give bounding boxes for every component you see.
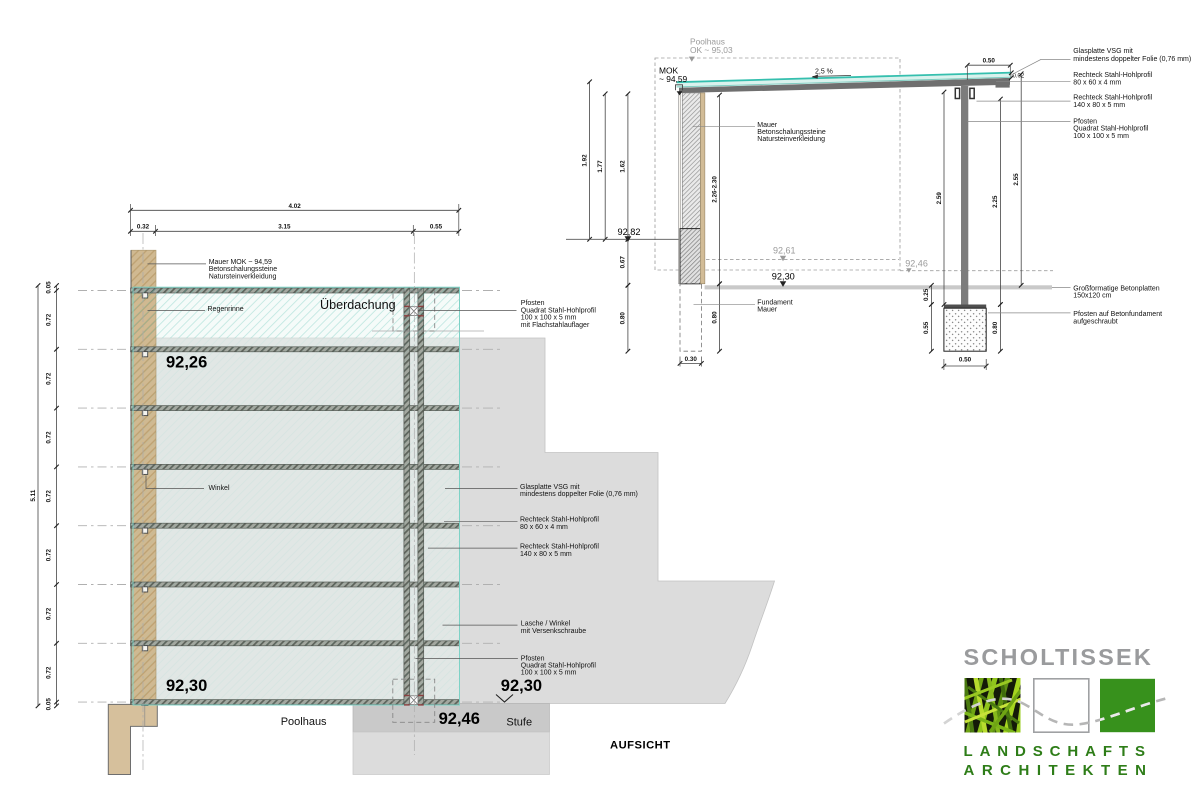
- svg-text:0.32: 0.32: [137, 224, 150, 231]
- svg-text:0.30: 0.30: [685, 356, 698, 363]
- svg-text:Mauer MOK ~ 94,59: Mauer MOK ~ 94,59: [209, 259, 272, 266]
- svg-text:80 x 60 x 4 mm: 80 x 60 x 4 mm: [1073, 79, 1121, 86]
- svg-text:0.72: 0.72: [46, 372, 53, 385]
- svg-text:AUFSICHT: AUFSICHT: [610, 740, 671, 752]
- svg-text:92,46: 92,46: [905, 259, 928, 269]
- svg-text:LANDSCHAFTS: LANDSCHAFTS: [964, 743, 1152, 760]
- svg-text:Überdachung: Überdachung: [320, 298, 396, 312]
- svg-text:2.55: 2.55: [1013, 173, 1020, 186]
- svg-text:2.25: 2.25: [992, 195, 999, 208]
- svg-text:0.55: 0.55: [923, 321, 930, 334]
- svg-text:92,30: 92,30: [501, 677, 542, 695]
- svg-text:OK ~ 95,03: OK ~ 95,03: [690, 45, 733, 55]
- svg-text:100 x 100 x 5 mm: 100 x 100 x 5 mm: [1073, 133, 1129, 140]
- svg-text:1.62: 1.62: [620, 160, 627, 173]
- svg-text:0.72: 0.72: [46, 431, 53, 444]
- svg-text:Betonschalungssteine: Betonschalungssteine: [757, 129, 826, 136]
- svg-text:Mauer: Mauer: [757, 122, 778, 129]
- svg-text:0.80: 0.80: [992, 321, 999, 334]
- svg-text:92,82: 92,82: [618, 227, 641, 237]
- svg-text:0.72: 0.72: [46, 607, 53, 620]
- svg-text:0.72: 0.72: [46, 666, 53, 679]
- svg-text:0.50: 0.50: [959, 357, 972, 364]
- svg-text:Rechteck Stahl-Hohlprofil: Rechteck Stahl-Hohlprofil: [1073, 95, 1152, 102]
- svg-text:SCHOLTISSEK: SCHOLTISSEK: [964, 644, 1154, 670]
- svg-text:2.59: 2.59: [936, 192, 943, 205]
- svg-text:Quadrat Stahl-Hohlprofil: Quadrat Stahl-Hohlprofil: [1073, 126, 1149, 133]
- svg-text:Quadrat Stahl-Hohlprofil: Quadrat Stahl-Hohlprofil: [521, 307, 597, 314]
- svg-text:0.55: 0.55: [430, 224, 443, 231]
- svg-text:0.25: 0.25: [923, 288, 930, 301]
- svg-text:Natursteinverkleidung: Natursteinverkleidung: [757, 136, 825, 143]
- svg-text:0.80: 0.80: [711, 311, 718, 324]
- svg-text:0.72: 0.72: [46, 548, 53, 561]
- svg-text:140 x 80 x 5 mm: 140 x 80 x 5 mm: [1073, 102, 1125, 109]
- svg-text:mit Versenkschraube: mit Versenkschraube: [521, 628, 586, 635]
- svg-text:Lasche / Winkel: Lasche / Winkel: [521, 620, 571, 627]
- svg-text:Poolhaus: Poolhaus: [281, 716, 327, 728]
- svg-text:Natursteinverkleidung: Natursteinverkleidung: [209, 273, 277, 280]
- svg-text:0.02: 0.02: [1013, 74, 1025, 80]
- svg-text:0.72: 0.72: [46, 490, 53, 503]
- svg-text:Rechteck Stahl-Hohlprofil: Rechteck Stahl-Hohlprofil: [520, 543, 599, 550]
- svg-text:4.02: 4.02: [289, 203, 302, 210]
- svg-text:Glasplatte VSG mit: Glasplatte VSG mit: [1073, 48, 1133, 55]
- svg-text:mindestens doppelter Folie (0,: mindestens doppelter Folie (0,76 mm): [1073, 56, 1191, 63]
- svg-text:Großformatige Betonplatten: Großformatige Betonplatten: [1073, 286, 1159, 293]
- svg-text:92,26: 92,26: [166, 353, 207, 371]
- svg-text:mindestens doppelter Folie (0,: mindestens doppelter Folie (0,76 mm): [520, 491, 638, 498]
- svg-text:0.50: 0.50: [983, 57, 996, 64]
- svg-text:1.92: 1.92: [581, 154, 588, 167]
- svg-text:150x120 cm: 150x120 cm: [1073, 293, 1111, 300]
- svg-text:92,61: 92,61: [773, 245, 796, 255]
- svg-text:Pfosten: Pfosten: [521, 655, 545, 662]
- svg-text:0.05: 0.05: [46, 281, 53, 294]
- svg-text:1.77: 1.77: [597, 160, 604, 173]
- svg-text:0.72: 0.72: [46, 313, 53, 326]
- svg-text:Quadrat Stahl-Hohlprofil: Quadrat Stahl-Hohlprofil: [521, 663, 597, 670]
- svg-text:92,46: 92,46: [439, 710, 480, 728]
- svg-text:5.11: 5.11: [30, 489, 37, 501]
- svg-text:Glasplatte VSG mit: Glasplatte VSG mit: [520, 484, 580, 491]
- svg-text:Pfosten: Pfosten: [1073, 119, 1097, 126]
- svg-text:~ 94,59: ~ 94,59: [659, 74, 688, 84]
- svg-text:0.80: 0.80: [620, 312, 627, 325]
- svg-text:92,30: 92,30: [772, 271, 795, 281]
- svg-text:2.26-2.30: 2.26-2.30: [711, 176, 718, 203]
- svg-text:0.67: 0.67: [620, 256, 627, 269]
- svg-text:Pfosten: Pfosten: [521, 300, 545, 307]
- svg-text:140 x 80 x 5 mm: 140 x 80 x 5 mm: [520, 551, 572, 558]
- svg-text:100 x 100 x 5 mm: 100 x 100 x 5 mm: [521, 315, 577, 322]
- svg-text:Stufe: Stufe: [506, 716, 532, 728]
- svg-text:Rechteck Stahl-Hohlprofil: Rechteck Stahl-Hohlprofil: [1073, 72, 1152, 79]
- svg-text:Regenrinne: Regenrinne: [208, 306, 244, 313]
- svg-text:aufgeschraubt: aufgeschraubt: [1073, 318, 1117, 325]
- svg-text:ARCHITEKTEN: ARCHITEKTEN: [964, 762, 1154, 779]
- svg-text:Betonschalungssteine: Betonschalungssteine: [209, 266, 278, 273]
- svg-text:mit Flachstahlauflager: mit Flachstahlauflager: [521, 322, 590, 329]
- svg-text:Mauer: Mauer: [757, 307, 778, 314]
- svg-text:Winkel: Winkel: [209, 485, 230, 492]
- svg-text:Rechteck Stahl-Hohlprofil: Rechteck Stahl-Hohlprofil: [520, 517, 599, 524]
- svg-text:100 x 100 x 5 mm: 100 x 100 x 5 mm: [521, 670, 577, 677]
- svg-text:92,30: 92,30: [166, 677, 207, 695]
- svg-text:Fundament: Fundament: [757, 300, 792, 307]
- svg-text:Pfosten auf Betonfundament: Pfosten auf Betonfundament: [1073, 311, 1162, 318]
- svg-text:80 x 60 x 4 mm: 80 x 60 x 4 mm: [520, 524, 568, 531]
- svg-text:2,5 %: 2,5 %: [815, 68, 833, 75]
- svg-text:3.15: 3.15: [278, 224, 291, 231]
- svg-text:0.05: 0.05: [46, 698, 53, 711]
